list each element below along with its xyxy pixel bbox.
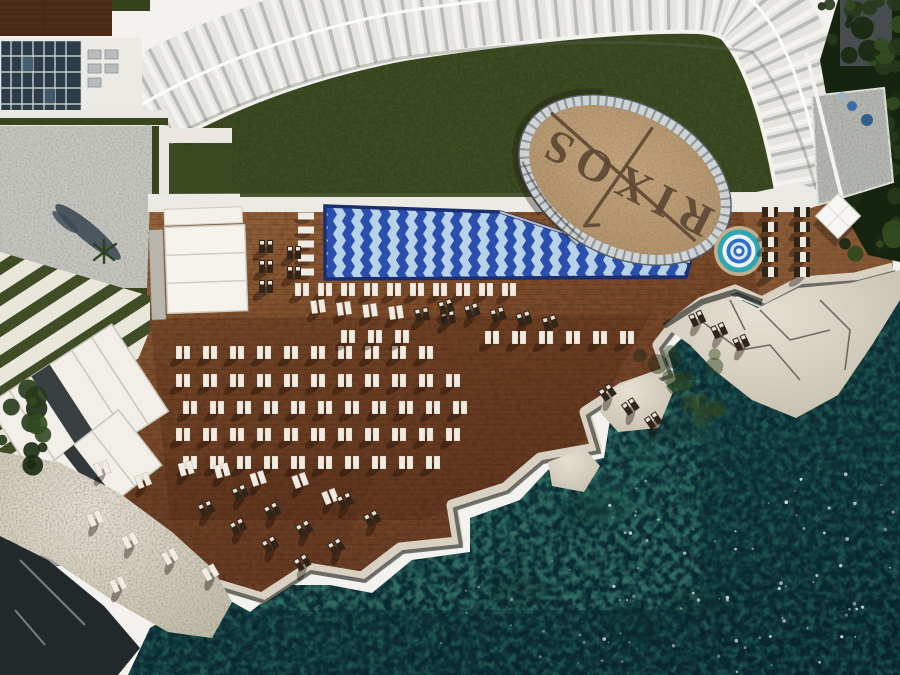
walkway (162, 128, 232, 143)
round-pool (714, 226, 764, 276)
aerial-photo-canvas: RIXOS (0, 0, 900, 675)
hedge (0, 118, 168, 125)
walkway (0, 110, 168, 118)
hedge (240, 191, 570, 197)
cafe-table (838, 92, 846, 100)
cafe-umbrella (847, 101, 857, 111)
resort-aerial-photo: RIXOS (0, 0, 900, 675)
cafe-umbrella (861, 114, 873, 126)
